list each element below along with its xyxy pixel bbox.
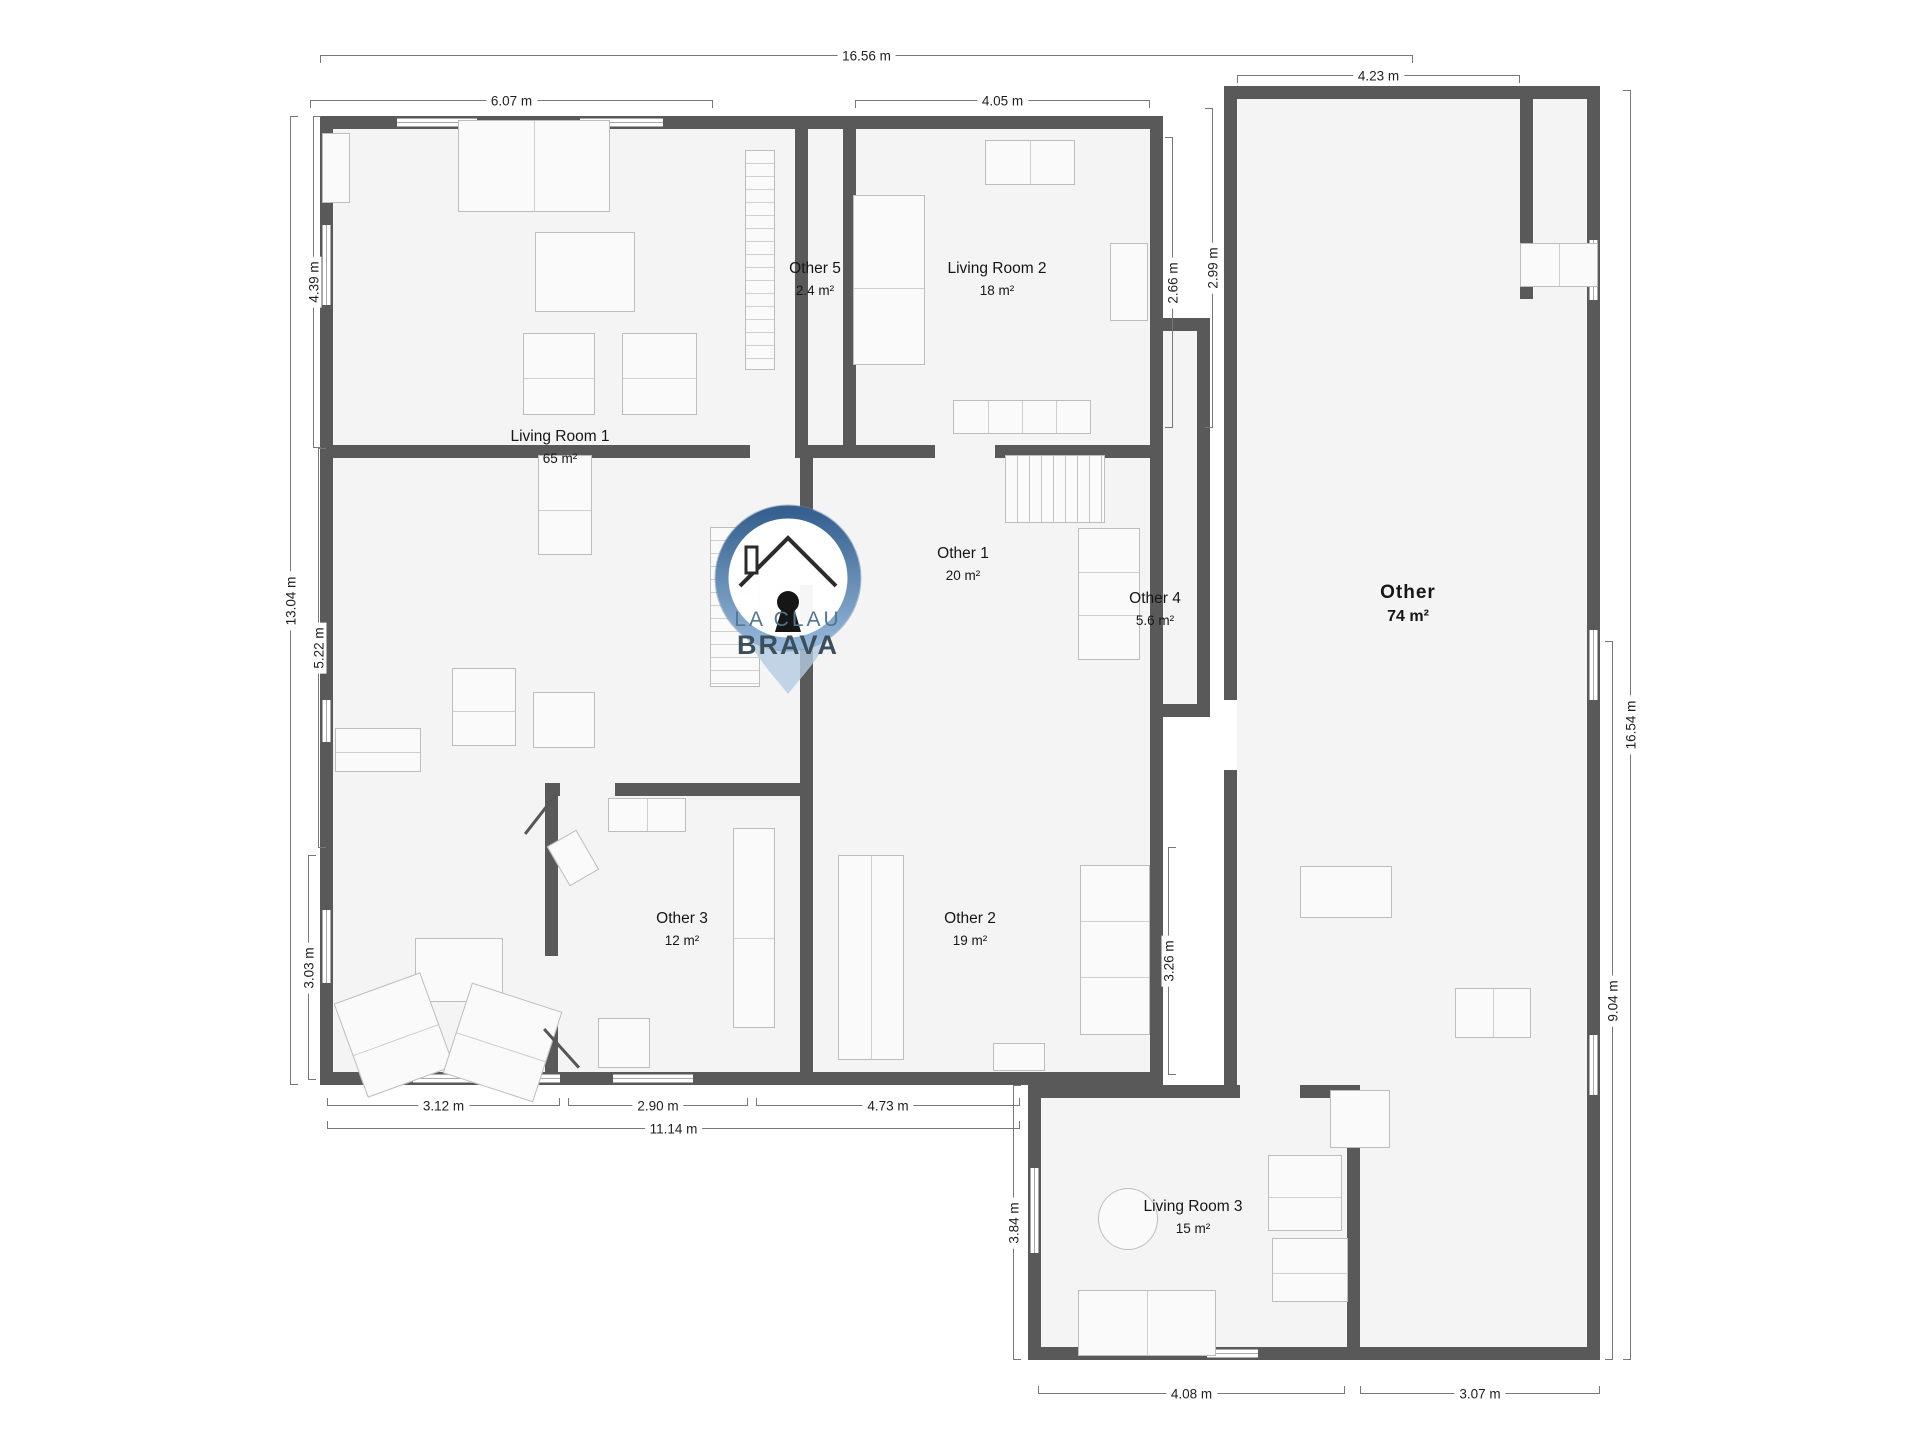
dimension-line: 6.07 m	[310, 100, 713, 101]
furniture-cabinet	[733, 828, 775, 1028]
dimension-line: 2.90 m	[568, 1105, 748, 1106]
dimension-label: 6.07 m	[486, 94, 537, 109]
dimension-label: 3.84 m	[1007, 1197, 1022, 1248]
furniture-sideboard	[608, 798, 686, 832]
dimension-line: 2.99 m	[1212, 108, 1213, 428]
floor-plan-canvas: 16.56 m6.07 m4.05 m4.23 m13.04 m4.39 m5.…	[0, 0, 1920, 1440]
room-floor	[1163, 331, 1197, 704]
window-pane-line	[613, 1082, 693, 1083]
room-label-living-room-1: Living Room 165 m²	[510, 428, 609, 466]
furniture-wardrobe	[838, 855, 904, 1060]
room-area: 65 m²	[510, 451, 609, 466]
room-name: Other 1	[937, 545, 989, 562]
furniture-chair	[598, 1018, 650, 1068]
wall-segment	[1150, 704, 1210, 717]
watermark-text-line2: BRAVA	[700, 630, 876, 661]
furniture-coffee-table	[535, 232, 635, 312]
furniture-bed	[538, 455, 592, 555]
dimension-line: 4.73 m	[756, 1105, 1020, 1106]
furniture-stairs	[1005, 455, 1105, 523]
wall-segment	[1150, 318, 1210, 331]
dimension-line: 11.14 m	[327, 1128, 1020, 1129]
dimension-label: 3.07 m	[1454, 1387, 1505, 1402]
room-label-other-5: Other 52.4 m²	[789, 260, 841, 298]
watermark-logo: LA CLAU BRAVA	[700, 492, 876, 707]
room-area: 18 m²	[947, 283, 1046, 298]
wall-segment	[1028, 1085, 1240, 1098]
furniture-cabinet	[985, 140, 1075, 185]
furniture-table	[993, 1043, 1045, 1071]
room-area: 15 m²	[1143, 1221, 1242, 1236]
room-area: 12 m²	[656, 933, 708, 948]
dimension-line: 3.84 m	[1013, 1085, 1014, 1360]
window	[1030, 1168, 1039, 1253]
room-area: 19 m²	[944, 933, 996, 948]
room-name: Other 5	[789, 260, 841, 277]
dimension-line: 2.66 m	[1172, 137, 1173, 428]
furniture-armchair	[1268, 1155, 1342, 1231]
room-name: Living Room 1	[510, 428, 609, 445]
dimension-label: 3.12 m	[418, 1099, 469, 1114]
dimension-label: 16.54 m	[1624, 696, 1639, 755]
wall-segment	[1237, 86, 1600, 99]
dimension-label: 4.39 m	[307, 256, 322, 307]
dimension-line: 16.56 m	[320, 55, 1413, 56]
window	[613, 1074, 693, 1083]
dimension-label: 4.73 m	[862, 1099, 913, 1114]
furniture-armchair	[452, 668, 516, 746]
furniture-bookshelf	[745, 150, 775, 370]
location-pin-house-icon	[700, 492, 876, 707]
dimension-label: 9.04 m	[1606, 975, 1621, 1026]
room-label-other-3: Other 312 m²	[656, 910, 708, 948]
dimension-label: 3.03 m	[302, 942, 317, 993]
room-label-other-4: Other 45.6 m²	[1129, 590, 1181, 628]
dimension-label: 16.56 m	[837, 49, 896, 64]
dimension-line: 4.05 m	[855, 100, 1150, 101]
furniture-piano	[335, 728, 421, 772]
room-name: Other 4	[1129, 590, 1181, 607]
furniture-sofa	[458, 120, 610, 212]
dimension-line: 4.08 m	[1038, 1393, 1345, 1394]
dimension-line: 5.22 m	[318, 448, 319, 848]
room-label-living-room-3: Living Room 315 m²	[1143, 1198, 1242, 1236]
furniture-sideboard	[1520, 243, 1598, 287]
room-area: 5.6 m²	[1129, 613, 1181, 628]
window-pane-line	[397, 118, 477, 119]
dimension-label: 3.26 m	[1162, 935, 1177, 986]
wall-segment	[545, 796, 558, 956]
dimension-label: 4.23 m	[1353, 69, 1404, 84]
dimension-label: 2.90 m	[632, 1099, 683, 1114]
window	[1589, 1035, 1598, 1095]
dimension-line: 13.04 m	[290, 116, 291, 1085]
furniture-cabinet	[322, 133, 350, 203]
wall-segment	[1347, 1347, 1600, 1360]
wall-segment	[1197, 331, 1210, 717]
dimension-line: 3.03 m	[308, 855, 309, 1080]
window	[322, 910, 331, 983]
dimension-line: 3.26 m	[1168, 847, 1169, 1075]
dimension-label: 11.14 m	[645, 1122, 703, 1137]
room-name: Living Room 3	[1143, 1198, 1242, 1215]
dimension-line: 4.39 m	[313, 116, 314, 448]
room-area: 2.4 m²	[789, 283, 841, 298]
window	[1589, 630, 1598, 700]
furniture-armchair	[622, 333, 697, 415]
wall-segment	[1224, 770, 1237, 1085]
furniture-sofa	[1080, 865, 1150, 1035]
room-area: 74 m²	[1380, 609, 1436, 624]
dimension-line: 9.04 m	[1612, 641, 1613, 1360]
room-name: Other 2	[944, 910, 996, 927]
room-label-other-2: Other 219 m²	[944, 910, 996, 948]
room-name: Other 3	[656, 910, 708, 927]
dimension-label: 4.08 m	[1166, 1387, 1217, 1402]
dimension-label: 13.04 m	[284, 571, 299, 630]
room-label-other: Other74 m²	[1380, 584, 1436, 624]
dimension-line: 3.07 m	[1360, 1393, 1600, 1394]
wall-segment	[615, 783, 813, 796]
furniture-armchair	[1272, 1238, 1348, 1302]
window-pane-line	[1207, 1357, 1258, 1358]
dimension-label: 2.66 m	[1166, 257, 1181, 308]
furniture-dresser	[533, 692, 595, 748]
dimension-label: 4.05 m	[977, 94, 1028, 109]
window-pane-line	[613, 1078, 693, 1079]
furniture-sofa	[853, 195, 925, 365]
window	[322, 700, 331, 742]
dimension-line: 4.23 m	[1237, 75, 1520, 76]
furniture-sofa	[1078, 1290, 1216, 1356]
window	[322, 225, 331, 305]
dimension-label: 2.99 m	[1206, 242, 1221, 293]
room-name: Other	[1380, 584, 1436, 601]
room-area: 20 m²	[937, 568, 989, 583]
furniture-sideboard	[953, 400, 1091, 434]
furniture-desk	[1330, 1090, 1390, 1148]
room-label-other-1: Other 120 m²	[937, 545, 989, 583]
wall-segment	[795, 445, 935, 458]
dimension-label: 5.22 m	[312, 622, 327, 673]
furniture-tv-cabinet	[1110, 243, 1148, 321]
furniture-cabinet	[1455, 988, 1531, 1038]
room-name: Living Room 2	[947, 260, 1046, 277]
window-pane-line	[613, 1074, 693, 1075]
watermark-text-line1: LA CLAU	[700, 608, 876, 632]
room-label-living-room-2: Living Room 218 m²	[947, 260, 1046, 298]
furniture-table	[1300, 866, 1392, 918]
furniture-armchair	[523, 333, 595, 415]
dimension-line: 16.54 m	[1630, 90, 1631, 1360]
dimension-line: 3.12 m	[327, 1105, 560, 1106]
wall-segment	[1224, 86, 1237, 700]
window-pane-line	[580, 118, 663, 119]
